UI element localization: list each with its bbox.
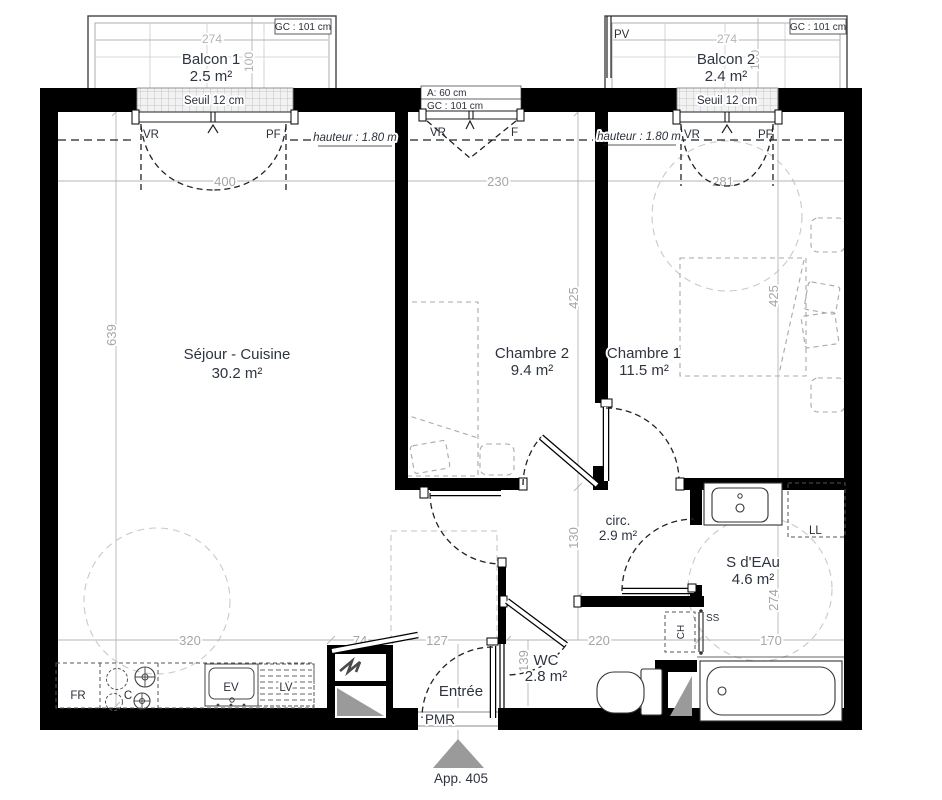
balcony-1: 274 100 GC : 101 cm Balcon 1 2.5 m² [88, 16, 336, 90]
towel-rail-label: SS [706, 613, 720, 624]
washer-label: LL [809, 525, 822, 537]
balcon2-name: Balcon 2 [697, 51, 755, 68]
dim-bottom-3: 220 [588, 633, 610, 648]
hob-label: C [124, 690, 132, 702]
sdeau-area: 4.6 m² [732, 571, 775, 588]
balcon2-pf-label: PF [758, 129, 773, 141]
height-note-right: hauteur : 1.80 m [597, 131, 681, 143]
wc-name: WC [534, 652, 559, 669]
dim-chambre2-h: 425 [566, 287, 581, 309]
washbasin [704, 483, 782, 525]
chambre1-area: 11.5 m² [619, 362, 669, 379]
dim-chambre1-h: 425 [766, 285, 781, 307]
balcon1-name: Balcon 1 [182, 51, 240, 68]
middle-window-guard-label: GC : 101 cm [427, 101, 483, 112]
balcony-2: 274 100 GC : 101 cm PV Balcon 2 2.4 m² [605, 16, 847, 90]
dim-chambre1-w: 281 [712, 174, 734, 189]
dim-bottom-0: 320 [179, 633, 201, 648]
floor-plan-svg: 274 100 GC : 101 cm Balcon 1 2.5 m² 274 … [0, 0, 942, 800]
dim-chambre2-w: 230 [487, 174, 509, 189]
dim-bottom-4: 170 [760, 633, 782, 648]
entree-name: Entrée [439, 683, 483, 700]
floor-plan-page: 274 100 GC : 101 cm Balcon 1 2.5 m² 274 … [0, 0, 942, 800]
height-note-left: hauteur : 1.80 m [313, 132, 397, 144]
chambre2-area: 9.4 m² [511, 362, 554, 379]
wc-area: 2.8 m² [525, 668, 568, 685]
sejour-name: Séjour - Cuisine [184, 346, 291, 363]
dim-bottom-2: 127 [426, 633, 448, 648]
dim-sdeau-h: 274 [766, 589, 781, 611]
toilet [597, 669, 662, 715]
middle-window-vr-label: VR [430, 127, 446, 139]
dim-balcon1-width: 274 [202, 32, 222, 46]
dim-circ-h: 130 [566, 527, 581, 549]
balcon1-sill-label: Seuil 12 cm [184, 95, 244, 107]
pmr-label: PMR [425, 712, 455, 727]
balcon2-screen-label: PV [614, 29, 630, 41]
balcon1-pf-label: PF [266, 129, 281, 141]
circ-area: 2.9 m² [599, 528, 638, 543]
dim-balcon2-width: 274 [717, 32, 737, 46]
dishwasher-label: LV [279, 682, 293, 694]
balcon2-sill-label: Seuil 12 cm [697, 95, 757, 107]
fridge-label: FR [70, 690, 85, 702]
water-heater-label: CH [676, 625, 687, 639]
dim-sejour-w: 400 [214, 174, 236, 189]
bathtub [697, 657, 844, 721]
balcon2-guard-label: GC : 101 cm [790, 22, 846, 33]
balcon2-area: 2.4 m² [705, 68, 748, 85]
chambre2-name: Chambre 2 [495, 345, 569, 362]
middle-window-f-label: F [511, 127, 518, 139]
chambre1-name: Chambre 1 [607, 345, 681, 362]
circ-name: circ. [606, 513, 631, 528]
dim-balcon1-depth: 100 [242, 52, 256, 72]
balcon1-area: 2.5 m² [190, 68, 233, 85]
dim-sejour-h: 639 [104, 324, 119, 346]
middle-window-allege-label: A: 60 cm [427, 88, 466, 99]
apartment-number: App. 405 [434, 771, 488, 786]
sejour-area: 30.2 m² [212, 365, 263, 382]
balcon2-vr-label: VR [684, 129, 700, 141]
balcon1-vr-label: VR [143, 129, 159, 141]
sdeau-name: S d'EAu [726, 554, 780, 571]
sink-label: EV [223, 682, 239, 694]
balcon1-guard-label: GC : 101 cm [275, 22, 331, 33]
